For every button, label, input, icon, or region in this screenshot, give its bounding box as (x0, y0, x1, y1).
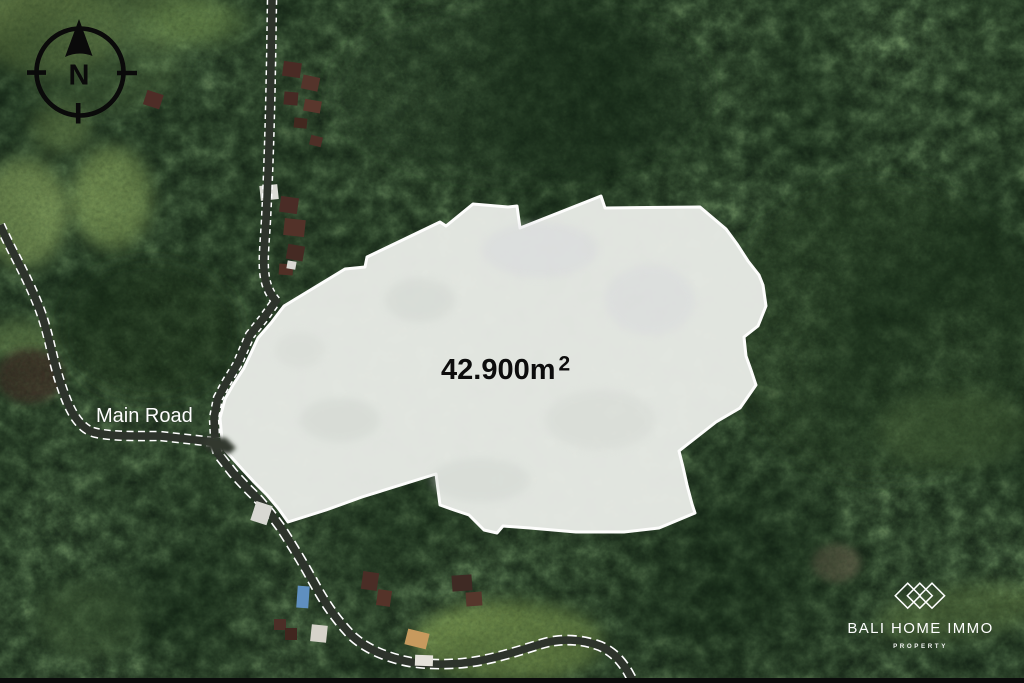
svg-text:PROPERTY: PROPERTY (893, 643, 948, 650)
svg-text:Main Road: Main Road (96, 405, 193, 427)
svg-text:N: N (69, 60, 90, 92)
svg-text:BALI HOME IMMO: BALI HOME IMMO (847, 620, 993, 637)
svg-text:42.900m2: 42.900m2 (441, 353, 570, 387)
